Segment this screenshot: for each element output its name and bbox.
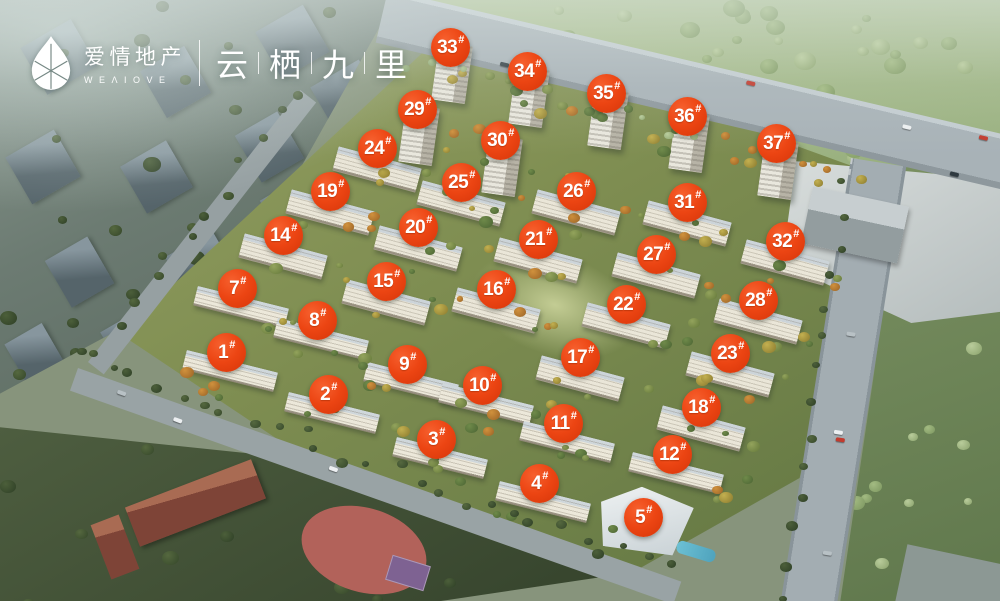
building-marker-11[interactable]: 11# [544, 404, 583, 443]
marker-suffix: # [542, 471, 548, 482]
marker-number: 3 [428, 430, 438, 449]
marker-suffix: # [240, 276, 246, 287]
marker-number: 7 [229, 279, 239, 298]
marker-suffix: # [738, 341, 744, 352]
marker-number: 37 [763, 134, 783, 153]
marker-number: 32 [772, 232, 792, 251]
building-marker-10[interactable]: 10# [463, 366, 502, 405]
brand-name-latin: WEΛIOVE [84, 75, 186, 85]
building-marker-5[interactable]: 5# [624, 498, 663, 537]
building-marker-14[interactable]: 14# [264, 216, 303, 255]
marker-suffix: # [584, 179, 590, 190]
building-marker-34[interactable]: 34# [508, 52, 547, 91]
marker-number: 16 [483, 280, 503, 299]
marker-number: 34 [514, 62, 534, 81]
building-marker-22[interactable]: 22# [607, 285, 646, 324]
marker-number: 1 [218, 343, 228, 362]
marker-suffix: # [504, 277, 510, 288]
building-marker-33[interactable]: 33# [431, 28, 470, 67]
project-title-char: 里 [375, 40, 407, 86]
project-title-char: 云 [216, 40, 248, 86]
marker-number: 23 [717, 344, 737, 363]
marker-number: 22 [613, 295, 633, 314]
marker-number: 2 [320, 385, 330, 404]
title-separator [258, 52, 259, 74]
title-separator [311, 52, 312, 74]
building-marker-24[interactable]: 24# [358, 129, 397, 168]
marker-suffix: # [588, 345, 594, 356]
marker-suffix: # [535, 59, 541, 70]
building-marker-31[interactable]: 31# [668, 183, 707, 222]
marker-suffix: # [695, 190, 701, 201]
marker-suffix: # [508, 128, 514, 139]
marker-suffix: # [385, 136, 391, 147]
marker-number: 11 [551, 414, 570, 433]
building-marker-25[interactable]: 25# [442, 163, 481, 202]
marker-suffix: # [425, 97, 431, 108]
marker-suffix: # [338, 179, 344, 190]
marker-suffix: # [793, 229, 799, 240]
marker-suffix: # [469, 170, 475, 181]
building-marker-35[interactable]: 35# [587, 74, 626, 113]
marker-number: 14 [270, 226, 290, 245]
building-marker-26[interactable]: 26# [557, 172, 596, 211]
marker-suffix: # [646, 505, 652, 516]
building-marker-9[interactable]: 9# [388, 345, 427, 384]
title-separator [364, 52, 365, 74]
building-marker-7[interactable]: 7# [218, 269, 257, 308]
marker-number: 36 [674, 107, 694, 126]
marker-suffix: # [458, 35, 464, 46]
building-marker-21[interactable]: 21# [519, 220, 558, 259]
brand-name-cn: 爱情地产 [84, 41, 186, 71]
building-marker-32[interactable]: 32# [766, 222, 805, 261]
building-marker-19[interactable]: 19# [311, 172, 350, 211]
marker-number: 24 [364, 139, 384, 158]
marker-number: 21 [525, 230, 545, 249]
marker-suffix: # [291, 223, 297, 234]
marker-number: 8 [309, 311, 319, 330]
marker-number: 25 [448, 173, 468, 192]
water-drop-logo-icon [28, 34, 74, 92]
marker-suffix: # [695, 104, 701, 115]
marker-number: 9 [399, 355, 409, 374]
building-marker-27[interactable]: 27# [637, 235, 676, 274]
marker-suffix: # [439, 427, 445, 438]
marker-number: 33 [437, 38, 457, 57]
marker-suffix: # [546, 227, 552, 238]
building-marker-1[interactable]: 1# [207, 333, 246, 372]
building-marker-30[interactable]: 30# [481, 121, 520, 160]
project-title-char: 九 [322, 40, 354, 86]
building-marker-29[interactable]: 29# [398, 90, 437, 129]
marker-suffix: # [426, 215, 432, 226]
marker-number: 12 [659, 445, 679, 464]
project-title: 云栖九里 [216, 40, 407, 86]
building-marker-15[interactable]: 15# [367, 262, 406, 301]
marker-number: 26 [563, 182, 583, 201]
building-marker-18[interactable]: 18# [682, 388, 721, 427]
marker-number: 28 [745, 291, 765, 310]
marker-number: 20 [405, 218, 425, 237]
marker-suffix: # [766, 288, 772, 299]
building-marker-37[interactable]: 37# [757, 124, 796, 163]
header-divider [199, 40, 200, 86]
building-marker-3[interactable]: 3# [417, 420, 456, 459]
marker-suffix: # [634, 292, 640, 303]
marker-number: 29 [404, 100, 424, 119]
marker-suffix: # [709, 395, 715, 406]
building-marker-23[interactable]: 23# [711, 334, 750, 373]
marker-number: 30 [487, 131, 507, 150]
marker-suffix: # [410, 352, 416, 363]
building-marker-28[interactable]: 28# [739, 281, 778, 320]
marker-number: 17 [567, 348, 587, 367]
marker-suffix: # [664, 242, 670, 253]
building-marker-16[interactable]: 16# [477, 270, 516, 309]
marker-number: 4 [531, 474, 541, 493]
marker-number: 15 [373, 272, 393, 291]
marker-suffix: # [394, 269, 400, 280]
marker-number: 31 [674, 193, 694, 212]
marker-suffix: # [614, 81, 620, 92]
brand-text: 爱情地产 WEΛIOVE [84, 41, 186, 85]
header: 爱情地产 WEΛIOVE 云栖九里 [28, 34, 407, 92]
marker-number: 27 [643, 245, 663, 264]
marker-suffix: # [490, 373, 496, 384]
marker-suffix: # [229, 340, 235, 351]
marker-number: 5 [635, 508, 645, 527]
building-marker-20[interactable]: 20# [399, 208, 438, 247]
marker-suffix: # [320, 308, 326, 319]
marker-number: 10 [469, 376, 489, 395]
building-marker-4[interactable]: 4# [520, 464, 559, 503]
marker-number: 18 [688, 398, 708, 417]
building-marker-17[interactable]: 17# [561, 338, 600, 377]
marker-suffix: # [331, 382, 337, 393]
building-marker-2[interactable]: 2# [309, 375, 348, 414]
marker-suffix: # [680, 442, 686, 453]
building-marker-12[interactable]: 12# [653, 435, 692, 474]
building-marker-8[interactable]: 8# [298, 301, 337, 340]
building-marker-36[interactable]: 36# [668, 97, 707, 136]
project-title-char: 栖 [269, 40, 301, 86]
marker-suffix: # [784, 131, 790, 142]
site-plan-poster: 1#2#3#4#5#7#8#9#10#11#12#14#15#16#17#18#… [0, 0, 1000, 601]
marker-suffix: # [571, 411, 577, 422]
marker-number: 35 [593, 84, 613, 103]
marker-number: 19 [317, 182, 337, 201]
